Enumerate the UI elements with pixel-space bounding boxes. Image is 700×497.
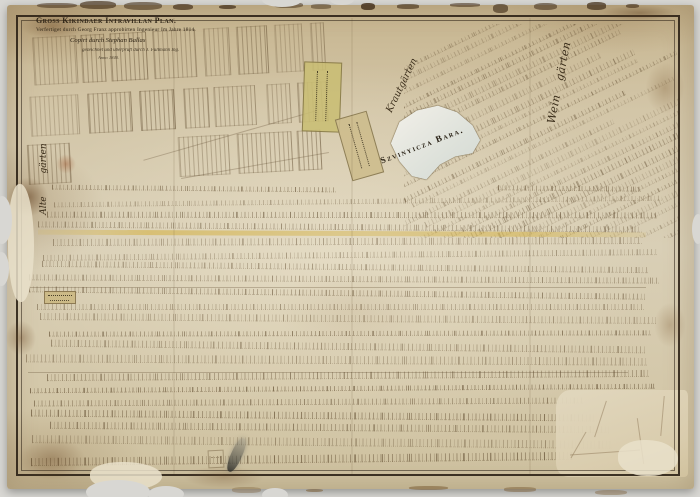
paper-tatter xyxy=(626,4,639,8)
paper-tatter xyxy=(587,2,607,9)
torn-edge xyxy=(86,480,150,497)
map-border-inner xyxy=(21,20,675,471)
paper-tatter xyxy=(306,489,323,492)
title-block: Gross Kikindaer Intravillan Plan. Verfer… xyxy=(36,16,251,60)
paper-tatter xyxy=(311,4,331,8)
paper-tatter xyxy=(173,4,193,10)
map-credit: Copirt durch Stephan Ballas xyxy=(70,37,251,44)
paper-tatter xyxy=(397,4,419,9)
paper-wear xyxy=(8,184,34,302)
paper-tatter xyxy=(409,486,449,490)
torn-edge xyxy=(148,486,184,497)
paper-tatter xyxy=(361,3,375,10)
paper-tatter xyxy=(80,1,116,9)
sketched-square xyxy=(208,450,225,469)
paper-tatter xyxy=(37,3,76,8)
paper-tatter xyxy=(232,487,261,493)
map-note: gezeichnet und überprüft durch J. Füllma… xyxy=(82,48,251,53)
paper-tatter xyxy=(450,3,479,7)
torn-edge xyxy=(692,214,700,244)
paper-wear xyxy=(618,440,678,476)
paper-tatter xyxy=(219,5,236,9)
old-gardens-label: Alte gärten xyxy=(39,127,49,231)
paper-tatter xyxy=(595,490,627,495)
map-title: Gross Kikindaer Intravillan Plan. xyxy=(36,16,251,25)
paper-tatter xyxy=(534,3,557,10)
torn-edge xyxy=(262,488,288,497)
paper-tatter xyxy=(493,4,508,13)
map-date-note: Anno 1840. xyxy=(98,55,251,60)
map-subtitle: Verfertiget durch Georg Franz approbirte… xyxy=(36,27,251,33)
photo-background: Gross Kikindaer Intravillan Plan. Verfer… xyxy=(0,0,700,497)
paper-tatter xyxy=(504,487,535,492)
paper-tatter xyxy=(124,2,163,10)
